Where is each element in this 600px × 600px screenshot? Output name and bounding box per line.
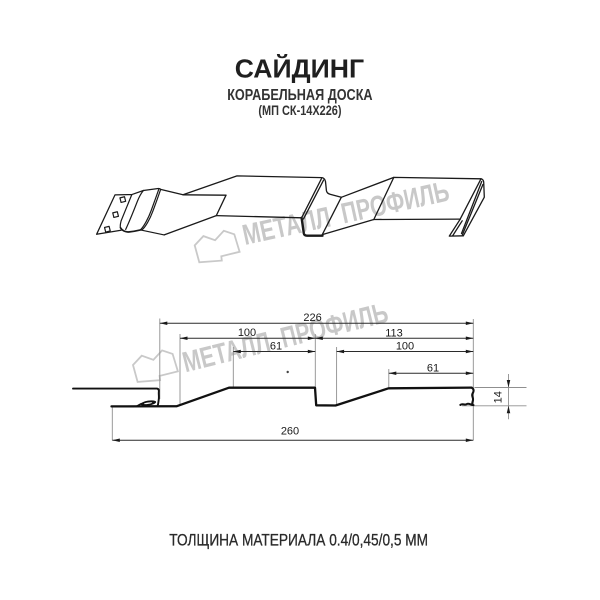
svg-text:100: 100 [396, 340, 414, 352]
svg-text:100: 100 [238, 327, 256, 339]
svg-text:61: 61 [427, 362, 439, 374]
svg-text:ТОЛЩИНА МАТЕРИАЛА 0.4/0,45/0,5: ТОЛЩИНА МАТЕРИАЛА 0.4/0,45/0,5 ММ [169, 531, 428, 549]
svg-text:КОРАБЕЛЬНАЯ ДОСКА: КОРАБЕЛЬНАЯ ДОСКА [227, 86, 372, 104]
svg-text:226: 226 [303, 312, 321, 324]
svg-text:14: 14 [493, 391, 505, 403]
svg-text:260: 260 [281, 426, 299, 438]
svg-text:61: 61 [270, 341, 282, 353]
svg-text:САЙДИНГ: САЙДИНГ [235, 53, 365, 83]
svg-text:113: 113 [385, 327, 403, 339]
svg-text:(МП СК-14Х226): (МП СК-14Х226) [258, 103, 341, 118]
